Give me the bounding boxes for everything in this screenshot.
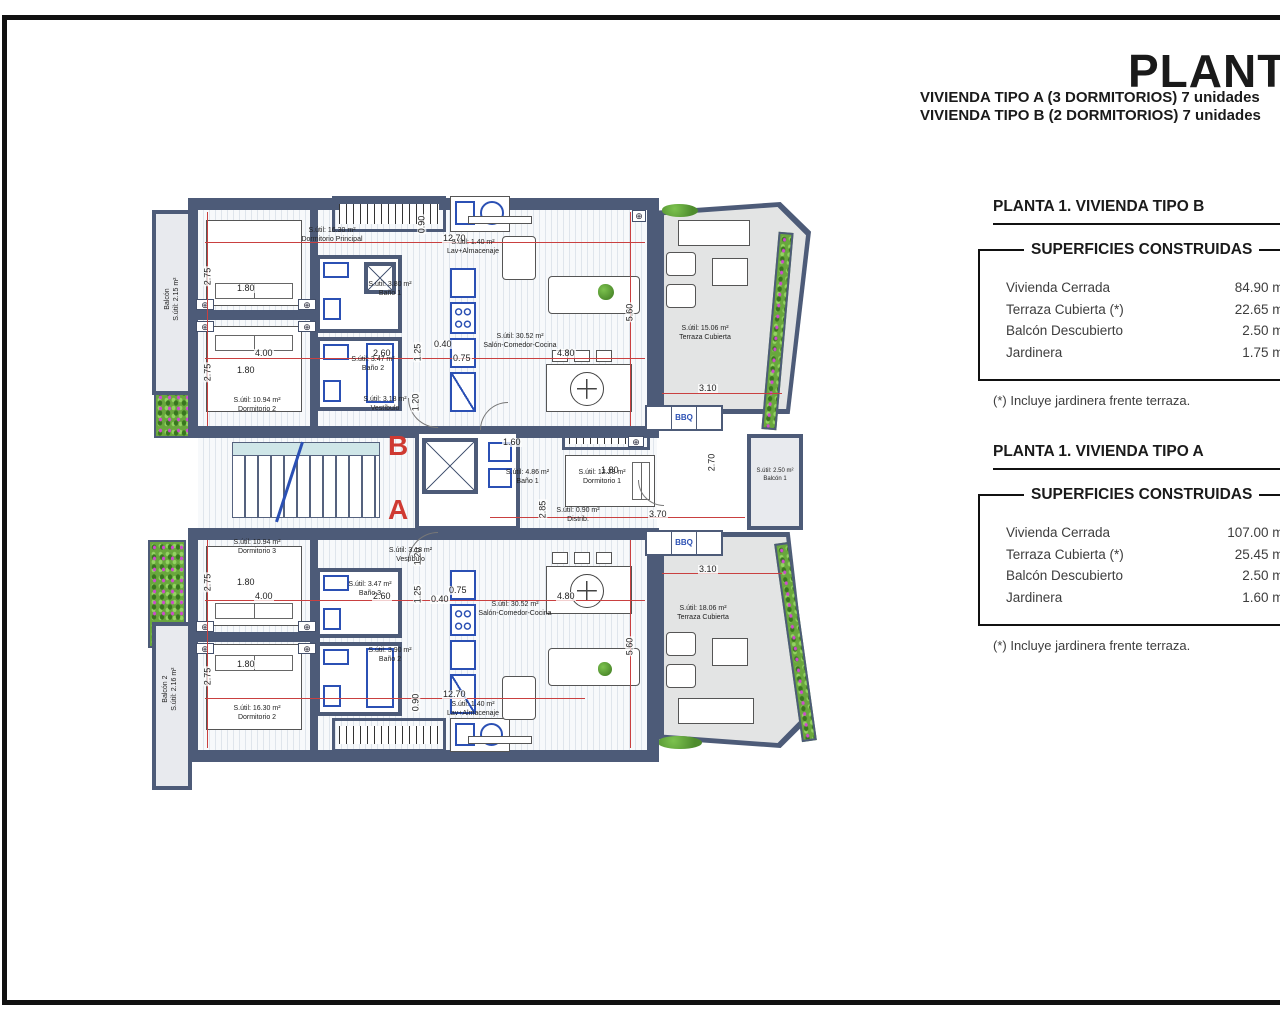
dimension-label: 1.60: [502, 438, 522, 447]
room-label-b-salon: S.útil: 30.52 m²Salón-Comedor-Cocina: [475, 332, 565, 350]
row-label: Balcón Descubierto: [1006, 565, 1123, 587]
panel-b-table: SUPERFICIES CONSTRUIDAS Vivienda Cerrada…: [978, 249, 1280, 381]
toilet-icon: [323, 298, 341, 320]
subtitle-tipo-a: VIVIENDA TIPO A (3 DORMITORIOS) 7 unidad…: [920, 89, 1260, 106]
dimension-label: 3.10: [698, 565, 718, 574]
room-label-b-bano2: S.útil: 3.47 m²Baño 2: [338, 355, 408, 373]
table-row: Jardinera1.75 m²: [1006, 342, 1280, 364]
radiator-icon: [196, 321, 214, 332]
pillow: [215, 603, 293, 619]
table-row: Terraza Cubierta (*)22.65 m²: [1006, 299, 1280, 321]
wall-dorms-a: [198, 632, 320, 642]
dimension-label: 3.10: [698, 384, 718, 393]
wall-salon-terrace-b: [647, 198, 659, 438]
plant-icon: [598, 284, 614, 300]
room-label-a-bano1: S.útil: 4.86 m²Baño 1: [490, 468, 565, 486]
toilet-icon: [323, 380, 341, 402]
row-value: 22.65 m²: [1235, 299, 1280, 321]
round-table-icon: [570, 574, 604, 608]
room-label-a-dorm1: S.útil: 12.23 m²Dormitorio 1: [562, 468, 642, 486]
table-row: Balcón Descubierto2.50 m²: [1006, 565, 1280, 587]
room-label-a-vestibulo: S.útil: 3.18 m²Vestíbulo: [378, 546, 443, 564]
sheet-border-top: [2, 15, 1280, 20]
radiator-icon: [298, 643, 316, 654]
dimension-label: 12.70: [442, 690, 467, 699]
room-label-b-dorm2: S.útil: 10.94 m²Dormitorio 2: [212, 396, 302, 414]
terrace-table: [712, 638, 748, 666]
terrace-chair: [666, 284, 696, 308]
dimension-label: 2.75: [203, 667, 212, 687]
dimension-label: 5.60: [625, 303, 634, 323]
bbq-cell: [697, 407, 721, 429]
dimension-label: 0.40: [433, 340, 453, 349]
bbq-label: BBQ: [672, 532, 697, 554]
room-label-a-terraza: S.útil: 18.06 m²Terraza Cubierta: [658, 604, 748, 622]
panel-a-footnote: (*) Incluye jardinera frente terraza.: [993, 638, 1280, 653]
panel-b-footnote: (*) Incluye jardinera frente terraza.: [993, 393, 1280, 408]
dimension-label: 2.75: [203, 267, 212, 287]
dimension-label: 1.80: [236, 660, 256, 669]
dimension-label: 0.40: [430, 595, 450, 604]
dimension-label: 0.90: [411, 693, 420, 713]
dimension-label: 4.80: [556, 349, 576, 358]
bbq-cell: [647, 532, 672, 554]
subtitle-tipo-b: VIVIENDA TIPO B (2 DORMITORIOS) 7 unidad…: [920, 107, 1261, 124]
room-label-b-dorm-principal: S.útil: 16.30 m²Dormitorio Principal: [282, 226, 382, 244]
dimension-label: 5.60: [625, 637, 634, 657]
room-label-a-salon: S.útil: 30.52 m²Salón-Comedor-Cocina: [470, 600, 560, 618]
wall-left-top: [188, 198, 198, 438]
chair: [552, 552, 568, 564]
dimension-line: [205, 358, 645, 359]
row-value: 1.60 m²: [1242, 587, 1280, 609]
terrace-table: [712, 258, 748, 286]
terrace-chair: [666, 252, 696, 276]
row-value: 84.90 m²: [1235, 277, 1280, 299]
room-label-a-balcon2: Balcón 2S.útil: 2.16 m²: [161, 654, 179, 724]
panel-b-heading: SUPERFICIES CONSTRUIDAS: [1024, 241, 1259, 259]
dimension-label: 1.25: [413, 343, 422, 363]
row-label: Balcón Descubierto: [1006, 320, 1123, 342]
panel-a-heading: SUPERFICIES CONSTRUIDAS: [1024, 486, 1259, 504]
terrace-chair: [666, 664, 696, 688]
shrub-terrace-a: [658, 736, 702, 749]
dimension-label: 1.25: [413, 585, 422, 605]
section-marker-a: A: [388, 496, 408, 524]
dimension-line: [207, 212, 208, 426]
row-label: Vivienda Cerrada: [1006, 522, 1110, 544]
dimension-label: 0.90: [417, 215, 426, 235]
bbq-label: BBQ: [672, 407, 697, 429]
room-label-a-dorm2: S.útil: 16.30 m²Dormitorio 2: [212, 704, 302, 722]
dimension-line: [205, 698, 585, 699]
dimension-line: [207, 540, 208, 748]
row-label: Jardinera: [1006, 342, 1062, 364]
row-value: 2.50 m²: [1242, 320, 1280, 342]
dishwasher-icon: [450, 372, 476, 412]
bbq-cell: [697, 532, 721, 554]
dimension-label: 1.80: [236, 578, 256, 587]
room-label-b-lav: S.útil: 1.40 m²Lav+Almacenaje: [433, 238, 513, 256]
dimension-label: 0.75: [452, 354, 472, 363]
room-label-a-bano3: S.útil: 3.47 m²Baño 3: [335, 580, 405, 598]
panel-tipo-b: PLANTA 1. VIVIENDA TIPO B SUPERFICIES CO…: [978, 198, 1280, 408]
fridge-icon: [450, 268, 476, 298]
table-row: Terraza Cubierta (*)25.45 m²: [1006, 544, 1280, 566]
toilet-icon: [323, 608, 341, 630]
terrace-chair: [666, 632, 696, 656]
toilet-icon: [323, 685, 341, 707]
bbq-strip-a: BBQ: [645, 530, 723, 556]
row-label: Terraza Cubierta (*): [1006, 544, 1124, 566]
panel-b-title: PLANTA 1. VIVIENDA TIPO B: [993, 198, 1280, 225]
table-row: Jardinera1.60 m²: [1006, 587, 1280, 609]
room-label-b-vestibulo: S.útil: 3.18 m²Vestíbulo: [350, 395, 420, 413]
dimension-label: 2.85: [538, 500, 547, 520]
tv-bench: [468, 216, 532, 224]
dimension-line: [490, 517, 745, 518]
room-label-a-bano2: S.útil: 3.90 m²Baño 2: [355, 646, 425, 664]
table-row: Vivienda Cerrada84.90 m²: [1006, 277, 1280, 299]
stair-landing: [232, 442, 380, 456]
bbq-cell: [647, 407, 672, 429]
dimension-label: 1.80: [236, 284, 256, 293]
sink-icon: [323, 262, 349, 278]
radiator-icon: [196, 299, 214, 310]
radiator-icon: [628, 436, 644, 447]
dimension-label: 4.00: [254, 349, 274, 358]
kitchen-sink-icon: [450, 640, 476, 670]
dimension-line: [662, 393, 782, 394]
round-table-icon: [570, 372, 604, 406]
radiator-icon: [196, 643, 214, 654]
room-label-a-dorm3: S.útil: 10.94 m²Dormitorio 3: [212, 538, 302, 556]
shrub-terrace-b: [662, 204, 698, 217]
dimension-line: [205, 242, 645, 243]
wall-dorms-b: [198, 310, 320, 320]
floor-plan: BBQ BBQ: [150, 180, 850, 790]
radiator-icon: [298, 299, 316, 310]
sheet-border-left: [2, 15, 7, 1005]
radiator-icon: [298, 621, 316, 632]
section-marker-b: B: [388, 432, 408, 460]
sink-icon: [323, 649, 349, 665]
room-label-b-terraza: S.útil: 15.06 m²Terraza Cubierta: [660, 324, 750, 342]
shower-icon: [422, 438, 478, 494]
table-row: Balcón Descubierto2.50 m²: [1006, 320, 1280, 342]
room-label-b-bano1: S.útil: 3.80 m²Baño 1: [355, 280, 425, 298]
table-row: Vivienda Cerrada107.00 m²: [1006, 522, 1280, 544]
tv-bench: [468, 736, 532, 744]
dimension-label: 0.75: [448, 586, 468, 595]
dimension-label: 2.70: [707, 453, 716, 473]
wall-salon-terrace-a: [647, 528, 659, 762]
dimension-label: 3.70: [648, 510, 668, 519]
dimension-label: 2.75: [203, 363, 212, 383]
chair: [574, 350, 590, 362]
plant-icon: [598, 662, 612, 676]
row-value: 2.50 m²: [1242, 565, 1280, 587]
row-value: 25.45 m²: [1235, 544, 1280, 566]
dimension-label: 2.75: [203, 573, 212, 593]
dimension-label: 1.80: [236, 366, 256, 375]
row-label: Vivienda Cerrada: [1006, 277, 1110, 299]
row-value: 1.75 m²: [1242, 342, 1280, 364]
panel-a-title: PLANTA 1. VIVIENDA TIPO A: [993, 443, 1280, 470]
dimension-line: [662, 573, 782, 574]
row-value: 107.00 m²: [1227, 522, 1280, 544]
dimension-label: 4.00: [254, 592, 274, 601]
row-label: Terraza Cubierta (*): [1006, 299, 1124, 321]
radiator-icon: [196, 621, 214, 632]
sheet-border-bottom: [2, 1000, 1280, 1005]
panel-a-table: SUPERFICIES CONSTRUIDAS Vivienda Cerrada…: [978, 494, 1280, 626]
radiator-icon: [298, 321, 316, 332]
bbq-strip-b: BBQ: [645, 405, 723, 431]
chair: [596, 350, 612, 362]
panel-tipo-a: PLANTA 1. VIVIENDA TIPO A SUPERFICIES CO…: [978, 443, 1280, 653]
room-label-a-lav: S.útil: 1.40 m²Lav+Almacenaje: [433, 700, 513, 718]
wardrobe-bottom: [332, 718, 446, 752]
lounger: [678, 220, 750, 246]
fan-coil-icon: [632, 210, 646, 222]
chair: [596, 552, 612, 564]
lounger: [678, 698, 754, 724]
room-label-b-balcon: BalcónS.útil: 2.15 m²: [163, 264, 181, 334]
row-label: Jardinera: [1006, 587, 1062, 609]
room-label-a-balcon1: S.útil: 2.50 m²Balcón 1: [749, 468, 801, 484]
room-label-a-distrib: S.útil: 0.90 m²Distrib.: [548, 506, 608, 524]
hob-icon: [450, 302, 476, 334]
chair: [574, 552, 590, 564]
